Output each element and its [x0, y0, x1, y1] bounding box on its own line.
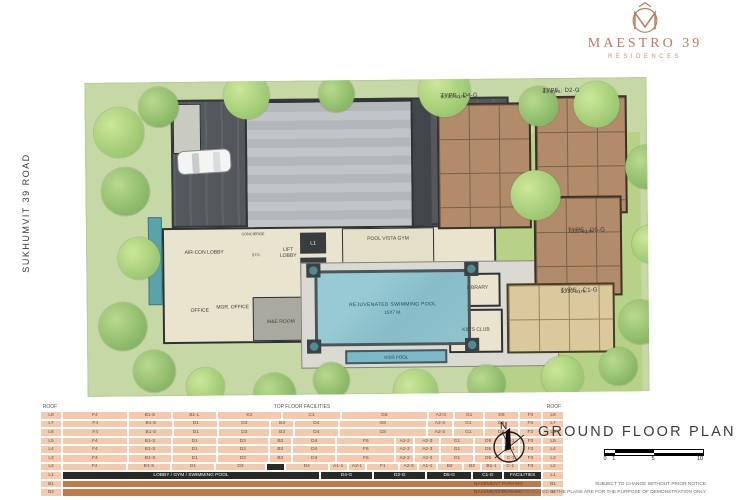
brand-name: MAESTRO 39	[565, 36, 725, 52]
brochure-page: MAESTRO 39 RESIDENCES SUKHUMVIT 39 ROAD …	[0, 0, 750, 500]
tree	[467, 365, 505, 397]
table-cell: TOP FLOOR FACILITIES	[60, 402, 544, 411]
table-cell: F4	[62, 411, 128, 420]
table-cell: G8	[339, 428, 427, 437]
table-cell: A2-3	[414, 445, 440, 454]
planter	[464, 262, 478, 276]
lift-lobby-label: LIFT LOBBY	[276, 247, 300, 259]
table-cell: BASEMENT PARKING	[62, 488, 542, 497]
table-cell: D1	[171, 463, 215, 472]
table-cell: G1	[440, 437, 473, 446]
table-cell: L3	[40, 454, 62, 463]
table-cell: BASEMENT PARKING	[62, 480, 542, 489]
table-cell: A2-1	[348, 463, 367, 472]
table-cell: ROOF	[40, 402, 60, 411]
table-cell: D3	[217, 454, 269, 463]
table-cell: D3	[218, 420, 270, 429]
table-cell: L8	[542, 411, 564, 420]
table-row: L8F4B1-SB1-LK2C1G8A2-3G1D9F3L8	[40, 411, 564, 420]
tree	[138, 87, 178, 127]
table-cell: D4	[292, 437, 337, 446]
maestro-monogram-icon	[627, 2, 663, 34]
unit-label-d4g: TYPE : D4-G 60.50 sq.m.	[440, 92, 532, 93]
table-cell: L5	[40, 437, 62, 446]
disclaimer-line1: SUBJECT TO CHANGE WITHOUT PRIOR NOTICE	[483, 481, 706, 489]
scale-tick: 1	[612, 456, 615, 462]
table-cell: D3	[217, 437, 269, 446]
disclaimer-line2: THE FURNITURE INDICATED IN THE PLANS ARE…	[483, 489, 706, 497]
table-cell: A2-3	[414, 437, 440, 446]
table-cell: B3	[270, 420, 293, 429]
table-cell: D4	[294, 420, 339, 429]
table-cell: D4	[285, 463, 329, 472]
lift-1: L1	[300, 232, 326, 253]
kids-club-label: KID'S CLUB	[451, 327, 501, 334]
table-cell: G1	[453, 428, 484, 437]
table-cell: C1	[282, 411, 341, 420]
table-cell: A2-3	[399, 463, 418, 472]
table-cell: G8	[339, 420, 427, 429]
tree	[253, 373, 295, 397]
table-cell: D9	[484, 411, 519, 420]
table-cell: B3	[270, 428, 293, 437]
tree	[94, 107, 145, 158]
table-cell: L3	[542, 454, 564, 463]
swimming-pool: REJUVENATED SWIMMING POOL 15X7 M.	[314, 269, 471, 347]
table-cell: K2	[217, 411, 283, 420]
table-cell: A2-3	[414, 454, 440, 463]
kids-pool: KIDS POOL	[345, 349, 447, 364]
table-cell: A2-3	[428, 411, 454, 420]
table-cell: B2	[437, 463, 463, 472]
table-header-row: ROOFTOP FLOOR FACILITIESROOF	[40, 402, 564, 411]
table-cell: B1-S	[128, 411, 172, 420]
tree	[599, 347, 637, 385]
table-cell: B1-S	[128, 454, 173, 463]
table-cell: A2-2	[395, 445, 414, 454]
gym-label: POOL VISTA GYM	[344, 235, 432, 242]
table-cell: L7	[40, 420, 62, 429]
site-plan: SHUTTLE SERVICE L1 L2 POOL VISTA GYM M&E…	[84, 77, 649, 397]
table-cell: A2-2	[395, 454, 414, 463]
tree	[313, 362, 349, 397]
table-cell: D1	[173, 428, 218, 437]
table-cell: B1-S	[128, 437, 173, 446]
table-cell: F6	[336, 437, 395, 446]
table-cell: D4	[294, 428, 339, 437]
table-cell: G1	[440, 445, 473, 454]
table-cell: F1	[366, 463, 399, 472]
table-cell: F6	[336, 445, 395, 454]
table-cell: F6	[336, 454, 395, 463]
table-cell: B1-S	[128, 420, 173, 429]
tree	[510, 170, 561, 221]
table-cell: B3	[269, 445, 292, 454]
storage-label: STO.	[246, 253, 266, 258]
table-cell: L6	[40, 428, 62, 437]
brand-subtitle: RESIDENCES	[565, 54, 725, 60]
table-cell: B1-L	[172, 411, 216, 420]
scale-tick: 0	[603, 456, 606, 462]
scale-bar	[604, 449, 704, 456]
tree	[99, 302, 148, 351]
table-cell: L4	[542, 445, 564, 454]
table-cell: F4	[62, 437, 128, 446]
tree	[541, 356, 583, 397]
table-cell: F4	[62, 463, 127, 472]
table-cell: B1	[40, 480, 62, 489]
me-room-label: M&E ROOM	[255, 319, 307, 326]
library-label: LIBRARY	[457, 285, 499, 291]
pool-label: REJUVENATED SWIMMING POOL	[349, 301, 436, 308]
page-title: GROUND FLOOR PLAN	[538, 424, 736, 440]
table-cell: F4	[62, 445, 128, 454]
table-cell: L2	[40, 463, 62, 472]
table-cell: G8	[341, 411, 428, 420]
table-cell: A1-1	[418, 463, 437, 472]
office-label: OFFICE	[183, 308, 217, 314]
scale-tick: 10	[697, 456, 703, 462]
table-cell: L2	[542, 463, 564, 472]
scale-ticks: 0 1 5 10	[604, 456, 702, 464]
table-cell: L8	[40, 411, 62, 420]
table-cell: A2-2	[395, 437, 414, 446]
table-cell: LOBBY / GYM / SWIMMING POOL	[62, 471, 320, 480]
table-cell: D3	[215, 463, 266, 472]
north-compass-icon: N	[486, 420, 532, 473]
table-cell: F4	[62, 428, 128, 437]
tree	[133, 350, 175, 392]
table-cell: G1	[454, 411, 484, 420]
table-cell: B1-S	[127, 463, 171, 472]
mgr-office-label: MGR. OFFICE	[215, 304, 251, 310]
table-cell: D1	[172, 454, 217, 463]
table-cell: A2-3	[427, 420, 453, 429]
table-cell: D1	[173, 420, 218, 429]
table-cell: A2-3	[427, 428, 453, 437]
road-label: SUKHUMVIT 39 ROAD	[21, 153, 31, 273]
table-cell: D4-G	[320, 471, 373, 480]
planter	[307, 339, 321, 353]
table-cell: G1	[453, 420, 484, 429]
table-cell: B1-S	[128, 428, 173, 437]
table-cell: ROOF	[544, 402, 564, 411]
table-cell: D1	[172, 437, 217, 446]
tree	[393, 369, 437, 397]
table-cell: D3	[218, 428, 270, 437]
table-cell: B2	[463, 463, 482, 472]
brand-logo: MAESTRO 39 RESIDENCES	[565, 2, 725, 60]
concierge-label: CONCIERGE	[232, 232, 274, 237]
car-icon	[177, 148, 232, 175]
table-cell: A1-1	[329, 463, 348, 472]
aircon-lobby-label: AIR-CON LOBBY	[174, 249, 234, 256]
table-cell: L1	[40, 471, 62, 480]
table-cell: B3	[269, 437, 292, 446]
scale-tick: 5	[651, 456, 654, 462]
table-cell: D3	[217, 445, 269, 454]
table-cell	[266, 463, 285, 472]
table-cell: F3	[519, 411, 542, 420]
table-cell: F4	[62, 454, 128, 463]
table-cell: D4	[292, 454, 337, 463]
disclaimer: SUBJECT TO CHANGE WITHOUT PRIOR NOTICE T…	[483, 481, 706, 496]
table-cell: F4	[62, 420, 128, 429]
table-cell: D2-G	[373, 471, 426, 480]
table-cell: B1-S	[128, 445, 173, 454]
pool-size-label: 15X7 M.	[384, 309, 401, 314]
table-cell: G1	[440, 454, 473, 463]
table-cell: B2	[40, 488, 62, 497]
tree	[101, 167, 150, 216]
table-cell: B3	[269, 454, 292, 463]
table-cell: L1	[542, 471, 564, 480]
table-cell: D1	[172, 445, 217, 454]
tree	[186, 368, 224, 397]
planter	[465, 338, 479, 352]
tree	[573, 81, 619, 127]
tree	[118, 237, 160, 279]
table-cell: D5-G	[426, 471, 472, 480]
table-cell: L4	[40, 445, 62, 454]
table-cell: D4	[292, 445, 337, 454]
north-label: N	[500, 421, 507, 432]
planter	[306, 263, 320, 277]
